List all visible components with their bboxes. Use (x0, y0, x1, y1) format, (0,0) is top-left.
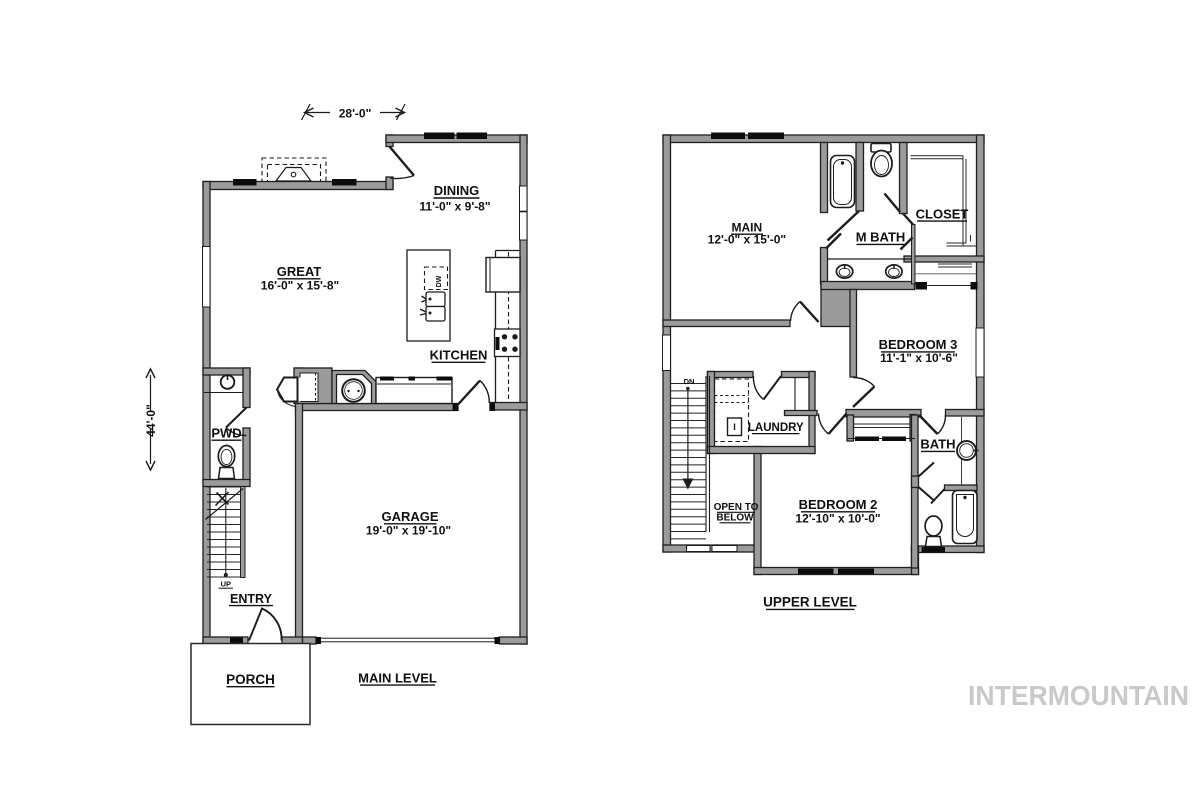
svg-text:M BATH: M BATH (856, 230, 906, 245)
svg-text:BATH: BATH (920, 437, 955, 452)
svg-text:GREAT: GREAT (277, 264, 322, 279)
svg-text:19'-0" x 19'-10": 19'-0" x 19'-10" (366, 524, 451, 538)
svg-text:44'-0": 44'-0" (144, 404, 158, 437)
svg-text:PWD: PWD (211, 425, 241, 440)
svg-text:DINING: DINING (434, 183, 480, 198)
svg-text:BEDROOM 2: BEDROOM 2 (799, 497, 878, 512)
svg-text:LAUNDRY: LAUNDRY (748, 422, 804, 434)
svg-text:PORCH: PORCH (226, 672, 275, 687)
svg-text:11'-1" x 10'-6": 11'-1" x 10'-6" (880, 351, 958, 365)
svg-text:12'-10" x 10'-0": 12'-10" x 10'-0" (795, 511, 880, 525)
svg-text:12'-0" x 15'-0": 12'-0" x 15'-0" (708, 233, 786, 247)
svg-text:11'-0" x 9'-8": 11'-0" x 9'-8" (419, 200, 490, 214)
svg-text:DW: DW (436, 275, 443, 287)
svg-text:28'-0": 28'-0" (339, 107, 372, 121)
svg-text:KITCHEN: KITCHEN (430, 348, 488, 363)
svg-text:GARAGE: GARAGE (381, 509, 438, 524)
svg-text:16'-0" x 15'-8": 16'-0" x 15'-8" (261, 279, 339, 293)
svg-text:OPEN TO: OPEN TO (714, 502, 759, 513)
svg-text:DN: DN (684, 377, 695, 386)
svg-text:MAIN LEVEL: MAIN LEVEL (358, 670, 437, 685)
svg-text:UP: UP (221, 579, 231, 588)
svg-text:INTERMOUNTAIN: INTERMOUNTAIN (968, 680, 1189, 711)
svg-text:CLOSET: CLOSET (916, 206, 969, 221)
svg-text:UPPER LEVEL: UPPER LEVEL (763, 595, 857, 610)
svg-text:ENTRY: ENTRY (230, 592, 273, 606)
svg-text:BELOW: BELOW (716, 513, 754, 524)
